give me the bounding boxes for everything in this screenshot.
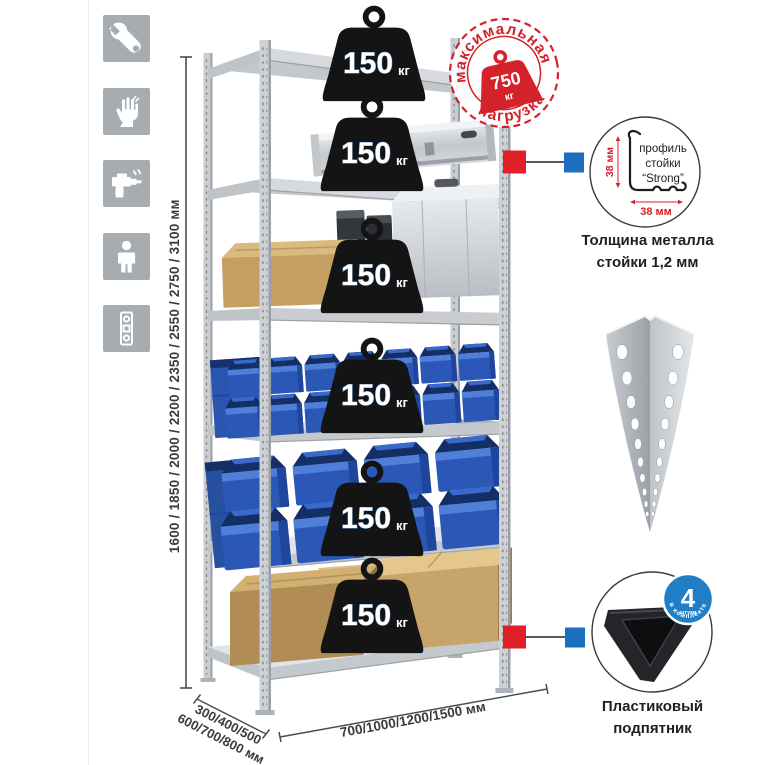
quantity-value: 4 — [681, 583, 696, 613]
badge-unit: кг — [396, 518, 409, 533]
metal-angle-post — [606, 316, 694, 532]
badge-value: 150 — [341, 259, 391, 292]
shelf-load-badge: 150 кг — [323, 9, 426, 102]
profile-detail-circle: 38 мм 38 мм профиль стойки “Strong” — [590, 117, 700, 227]
badge-unit: кг — [396, 395, 409, 410]
connector-red-square — [503, 626, 526, 649]
callout-connector-foot — [503, 626, 585, 649]
connector-blue-square — [565, 628, 585, 648]
badge-unit: кг — [396, 615, 409, 630]
profile-dim-horizontal: 38 мм — [640, 206, 672, 218]
badge-value: 150 — [343, 47, 393, 80]
profile-label: “Strong” — [642, 173, 684, 185]
profile-caption: Толщина металла стойки 1,2 мм — [555, 230, 740, 274]
shelf-load-badge: 150 кг — [321, 99, 424, 192]
foot-caption-line2: подпятник — [560, 718, 745, 740]
foot-caption-line1: Пластиковый — [560, 696, 745, 718]
badge-unit: кг — [398, 63, 411, 78]
connector-blue-square — [564, 153, 584, 173]
badge-unit: кг — [396, 275, 409, 290]
height-dimension-label: 1600 / 1850 / 2000 / 2200 / 2350 / 2550 … — [167, 136, 183, 616]
quantity-badge: 4 штуки в комплекте — [663, 574, 713, 624]
badge-value: 150 — [341, 379, 391, 412]
badge-value: 150 — [341, 137, 391, 170]
profile-caption-line2: стойки 1,2 мм — [555, 252, 740, 274]
connector-red-square — [503, 151, 526, 174]
foot-caption: Пластиковый подпятник — [560, 696, 745, 740]
profile-caption-line1: Толщина металла — [555, 230, 740, 252]
profile-dim-vertical: 38 мм — [604, 147, 616, 177]
badge-unit: кг — [396, 153, 409, 168]
product-infographic: 150 кг 150 кг 150 кг 150 кг 150 кг 150 к… — [0, 0, 765, 765]
badge-value: 150 — [341, 502, 391, 535]
rack-illustration: 150 кг 150 кг 150 кг 150 кг 150 кг 150 к… — [0, 0, 765, 765]
profile-label: профиль — [639, 143, 687, 155]
profile-label: стойки — [645, 158, 680, 170]
badge-value: 150 — [341, 599, 391, 632]
callout-connector-profile — [503, 151, 584, 174]
